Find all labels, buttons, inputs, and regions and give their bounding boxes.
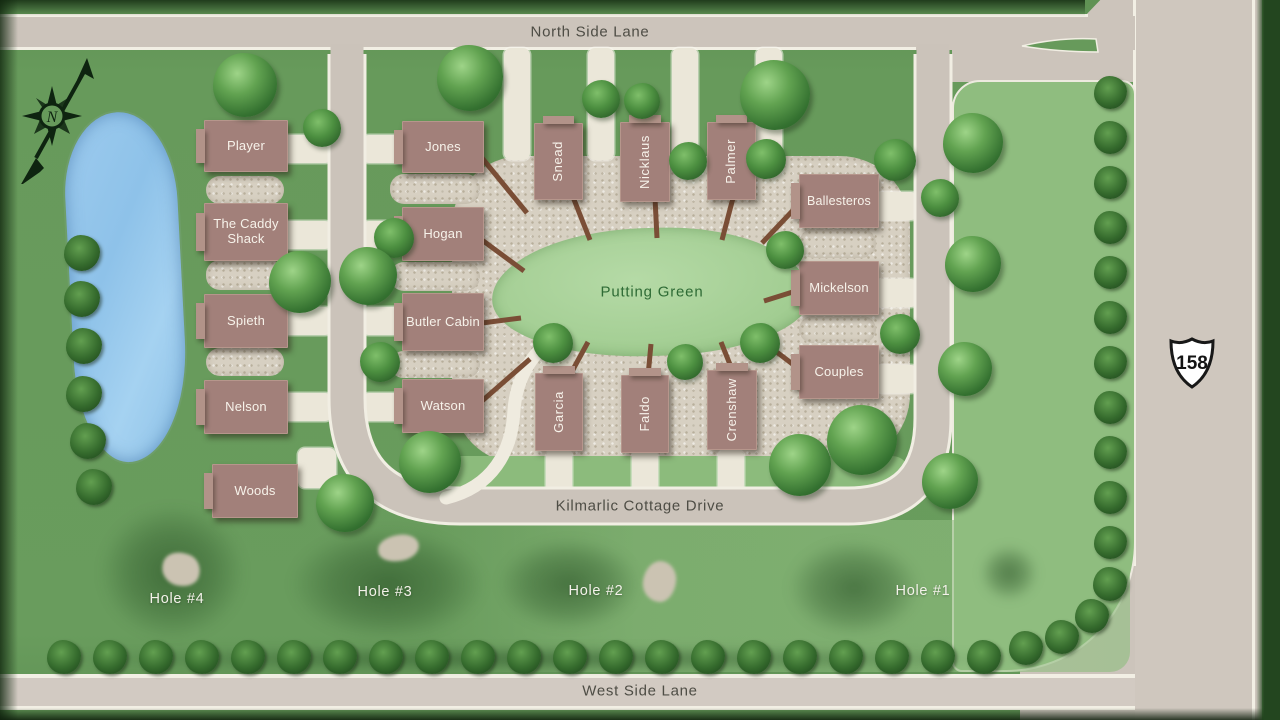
cottage-porch bbox=[543, 116, 575, 124]
hole-4-label: Hole #4 bbox=[150, 591, 205, 607]
tree-small bbox=[1094, 391, 1127, 424]
median-island bbox=[1022, 39, 1098, 52]
tree bbox=[533, 323, 573, 363]
tree bbox=[213, 53, 277, 117]
tree bbox=[938, 342, 992, 396]
cottage-label: Mickelson bbox=[809, 281, 869, 296]
tree bbox=[769, 434, 831, 496]
hole-2-label: Hole #2 bbox=[569, 583, 624, 599]
cottage-label: Woods bbox=[234, 484, 275, 499]
cottage-player: Player bbox=[204, 120, 288, 172]
cottage-label: Couples bbox=[814, 365, 863, 380]
tree-small bbox=[1094, 121, 1127, 154]
kilmarlic-cottage-drive-label: Kilmarlic Cottage Drive bbox=[556, 498, 725, 515]
tree bbox=[624, 83, 660, 119]
highway-158-shield: 158 bbox=[1168, 334, 1216, 390]
cottage-label: Spieth bbox=[227, 314, 265, 329]
tree bbox=[880, 314, 920, 354]
cottage-label: Nicklaus bbox=[638, 135, 653, 189]
cottage-snead: Snead bbox=[534, 123, 583, 200]
cottage-label: Garcia bbox=[552, 391, 567, 433]
cottage-crenshaw: Crenshaw bbox=[707, 370, 757, 450]
tree-small bbox=[1094, 76, 1127, 109]
tree-small bbox=[1094, 526, 1127, 559]
tree bbox=[740, 60, 810, 130]
cottage-label: Jones bbox=[425, 140, 461, 155]
tree-small bbox=[1094, 256, 1127, 289]
shield-number: 158 bbox=[1176, 353, 1208, 374]
tree bbox=[766, 231, 804, 269]
cottage-garcia: Garcia bbox=[535, 373, 583, 451]
edge-shadow-bottom bbox=[0, 708, 1280, 720]
edge-shadow-left bbox=[0, 0, 18, 720]
cottage-caddy-shack: The Caddy Shack bbox=[204, 203, 288, 261]
tree bbox=[827, 405, 897, 475]
cottage-hogan: Hogan bbox=[402, 207, 484, 261]
tree bbox=[316, 474, 374, 532]
tree-small bbox=[1094, 436, 1127, 469]
tree bbox=[945, 236, 1001, 292]
tree bbox=[437, 45, 503, 111]
cottage-nelson: Nelson bbox=[204, 380, 288, 434]
tree bbox=[582, 80, 620, 118]
tree bbox=[922, 453, 978, 509]
compass-rose: N bbox=[6, 52, 110, 184]
north-side-lane-label: North Side Lane bbox=[531, 24, 650, 41]
putting-green-label: Putting Green bbox=[601, 284, 704, 301]
tree-small bbox=[1094, 346, 1127, 379]
tree bbox=[943, 113, 1003, 173]
tree-small bbox=[1094, 211, 1127, 244]
cottage-nicklaus: Nicklaus bbox=[620, 122, 670, 202]
tree bbox=[921, 179, 959, 217]
tree bbox=[269, 251, 331, 313]
cottage-faldo: Faldo bbox=[621, 375, 669, 453]
tree bbox=[874, 139, 916, 181]
cottage-label: Palmer bbox=[724, 139, 739, 184]
edge-shadow-top bbox=[0, 0, 1085, 16]
cottage-label: Watson bbox=[421, 399, 466, 414]
tree bbox=[740, 323, 780, 363]
tree-small bbox=[1094, 301, 1127, 334]
tree bbox=[399, 431, 461, 493]
cottage-porch bbox=[204, 473, 213, 508]
cottage-woods: Woods bbox=[212, 464, 298, 518]
compass-arrowhead bbox=[77, 58, 94, 80]
cottage-jones: Jones bbox=[402, 121, 484, 173]
cottage-porch bbox=[791, 270, 800, 305]
cottage-mickelson: Mickelson bbox=[799, 261, 879, 315]
cottage-porch bbox=[543, 366, 574, 374]
hole-3-label: Hole #3 bbox=[358, 584, 413, 600]
cottage-label: Crenshaw bbox=[725, 378, 740, 441]
cottage-porch bbox=[196, 129, 205, 163]
compass-feather bbox=[20, 158, 44, 184]
tree bbox=[746, 139, 786, 179]
cottage-couples: Couples bbox=[799, 345, 879, 399]
cottage-ballesteros: Ballesteros bbox=[799, 174, 879, 228]
cottage-porch bbox=[791, 354, 800, 389]
cottage-label: Ballesteros bbox=[807, 194, 871, 208]
cottage-label: Hogan bbox=[423, 227, 462, 242]
cottage-label: Butler Cabin bbox=[406, 315, 480, 330]
edge-shadow-right bbox=[1256, 0, 1280, 720]
compass-north-letter: N bbox=[46, 109, 59, 126]
tree bbox=[667, 344, 703, 380]
tree-small bbox=[1094, 481, 1127, 514]
cottage-label: Player bbox=[227, 139, 265, 154]
cottage-label: The Caddy Shack bbox=[205, 217, 287, 246]
tree bbox=[303, 109, 341, 147]
cottage-porch bbox=[716, 115, 748, 123]
tree bbox=[360, 342, 400, 382]
cottage-porch bbox=[196, 303, 205, 338]
hole-1-label: Hole #1 bbox=[896, 583, 951, 599]
cottage-porch bbox=[716, 363, 749, 371]
cottage-porch bbox=[394, 388, 403, 423]
cottage-watson: Watson bbox=[402, 379, 484, 433]
cottage-label: Nelson bbox=[225, 400, 267, 415]
west-side-lane-label: West Side Lane bbox=[582, 683, 697, 700]
cottage-porch bbox=[791, 183, 800, 218]
cottage-porch bbox=[196, 213, 205, 251]
cottage-porch bbox=[629, 368, 660, 376]
tree bbox=[339, 247, 397, 305]
site-map: Player The Caddy Shack Spieth Nelson Woo… bbox=[0, 0, 1280, 720]
cottage-label: Faldo bbox=[638, 396, 653, 432]
cottage-porch bbox=[394, 303, 403, 341]
cottage-label: Snead bbox=[551, 141, 566, 182]
cottage-porch bbox=[394, 130, 403, 164]
cottage-porch bbox=[196, 389, 205, 424]
cottage-butler-cabin: Butler Cabin bbox=[402, 293, 484, 351]
tree bbox=[669, 142, 707, 180]
tree-small bbox=[1094, 166, 1127, 199]
